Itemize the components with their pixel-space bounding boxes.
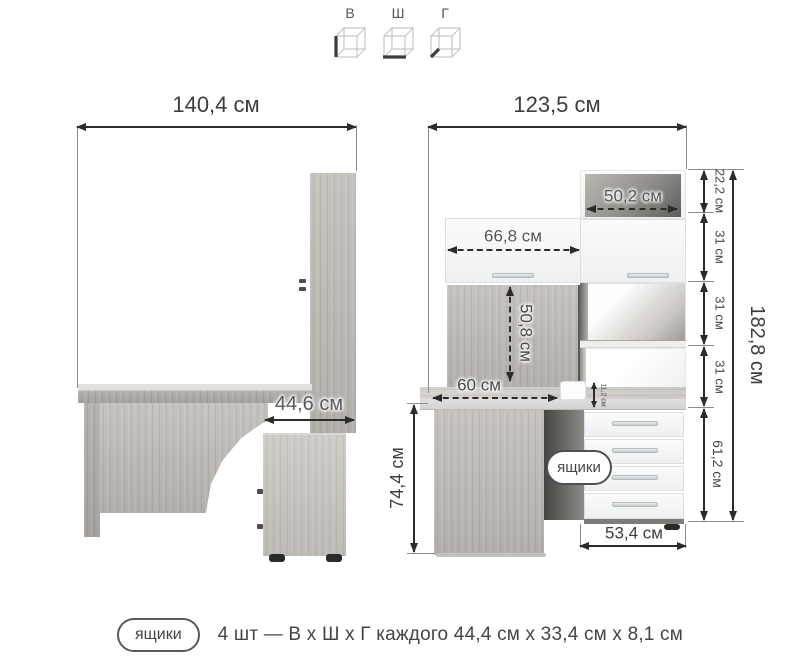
- front-pedestal-panel: [434, 410, 544, 555]
- dim-seg4-arrow: [703, 347, 705, 406]
- front-desktop-ledge: [560, 381, 586, 400]
- dim-side-unit-depth-arrow: [265, 419, 354, 421]
- drawer-handle: [612, 421, 658, 426]
- side-panel-hinge: [299, 287, 306, 291]
- side-panel-hinge: [299, 279, 306, 283]
- door-handle: [627, 273, 669, 278]
- dim-seg1-label: 22,2 см: [714, 169, 727, 213]
- side-drawer-unit-fitting: [257, 524, 263, 529]
- door-handle: [492, 273, 534, 278]
- front-shelf-compartment: [580, 283, 686, 343]
- side-unit-foot: [326, 554, 342, 562]
- side-modesty-panel: [100, 403, 268, 513]
- dim-drawers-height-arrow: [703, 409, 705, 520]
- drawer-handle: [612, 502, 658, 507]
- extension-line: [688, 521, 744, 522]
- footer-drawers-spec: 4 шт — В х Ш х Г каждого 44,4 см х 33,4 …: [218, 624, 683, 646]
- footer-caption: ящики 4 шт — В х Ш х Г каждого 44,4 см х…: [0, 618, 800, 652]
- side-drawer-unit-fitting: [257, 489, 263, 494]
- dim-niche-width-label: 50,2 см: [604, 188, 662, 205]
- dim-niche-width-arrow: [587, 208, 677, 210]
- side-desk-leg: [84, 403, 100, 537]
- dim-desk-depth-label: 60 см: [457, 377, 501, 394]
- dim-seg2-label: 31 см: [714, 230, 727, 264]
- dim-door-width-label: 66,8 см: [484, 228, 542, 245]
- front-shelf-board: [580, 340, 686, 348]
- pedestal-floor-shadow: [436, 553, 546, 557]
- dim-seg4-label: 31 см: [714, 360, 727, 394]
- dim-side-total-width-arrow: [77, 126, 356, 128]
- dim-drawers-width-label: 53,4 см: [605, 525, 663, 542]
- dim-drawers-height-label: 61,2 см: [711, 440, 725, 488]
- drawer-handle: [612, 475, 658, 480]
- dim-ledge-height-arrow: [593, 383, 595, 407]
- dim-total-height-label: 182,8 см: [747, 305, 767, 384]
- dim-seg1-arrow: [703, 171, 705, 212]
- dim-front-total-width-arrow: [428, 126, 686, 128]
- drawers-badge-label: ящики: [557, 459, 601, 476]
- drawers-badge: ящики: [546, 450, 612, 485]
- dim-side-total-width-label: 140,4 см: [172, 94, 259, 116]
- side-view-drawing: 140,4 см 44,6 см: [0, 0, 400, 600]
- dim-back-panel-height-arrow: [509, 287, 511, 381]
- dim-desk-height-label: 74,4 см: [388, 447, 406, 508]
- front-shelf-shadow: [580, 283, 588, 343]
- furniture-dimension-diagram: В Ш Г: [0, 0, 800, 667]
- dim-ledge-height-label: 11,2 см: [600, 383, 607, 406]
- extension-line: [428, 127, 429, 393]
- side-drawer-unit: [263, 433, 346, 556]
- dim-front-total-width-label: 123,5 см: [513, 94, 600, 116]
- dim-back-panel-height-label: 50,8 см: [518, 304, 535, 362]
- dim-side-unit-depth-label: 44,6 см: [275, 394, 343, 414]
- extension-line: [686, 125, 687, 169]
- extension-line: [356, 125, 357, 171]
- dim-desk-height-arrow: [413, 405, 415, 552]
- side-desktop-top: [78, 384, 312, 391]
- dim-seg3-arrow: [703, 283, 705, 344]
- dim-seg3-label: 31 см: [714, 296, 727, 330]
- drawer-handle: [612, 448, 658, 453]
- drawer-unit-foot: [664, 524, 680, 530]
- dim-seg2-arrow: [703, 214, 705, 280]
- side-unit-foot: [269, 554, 285, 562]
- dim-drawers-width-arrow: [580, 545, 686, 547]
- extension-line: [77, 127, 78, 388]
- dim-door-width-arrow: [448, 249, 579, 251]
- front-view-drawing: ящики 123,5 см 50,2 см 66,8 см 50,8 см 6…: [380, 0, 800, 600]
- dim-desk-depth-arrow: [433, 397, 557, 399]
- footer-drawers-badge: ящики: [117, 618, 200, 652]
- dim-total-height-arrow: [732, 171, 734, 520]
- extension-line: [407, 553, 435, 554]
